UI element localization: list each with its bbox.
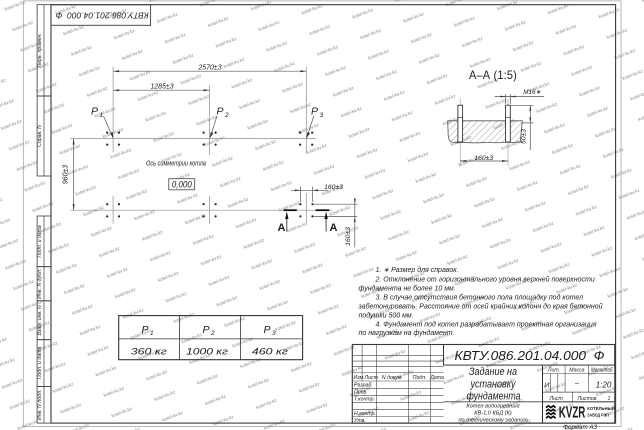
svg-text:N докум.: N докум. (382, 375, 403, 381)
svg-text:4. Фундамент под котел разраба: 4. Фундамент под котел разрабатывает про… (376, 320, 597, 328)
svg-text:А–А (1:5): А–А (1:5) (469, 68, 517, 82)
svg-text:ЗАВОД РЭП: ЗАВОД РЭП (587, 413, 609, 419)
svg-text:2: 2 (210, 330, 215, 337)
svg-text:Р: Р (217, 106, 224, 118)
svg-text:подушки 500 мм.: подушки 500 мм. (359, 311, 414, 319)
svg-text:КВТУ.086.201.04.000 Ф: КВТУ.086.201.04.000 Ф (56, 10, 149, 20)
svg-text:1285±3: 1285±3 (150, 83, 173, 90)
svg-text:Взам. инв. N: Взам. инв. N (37, 305, 43, 335)
svg-text:Р: Р (142, 324, 149, 336)
svg-text:Инв. N подл.: Инв. N подл. (37, 390, 43, 420)
svg-text:А: А (278, 222, 286, 234)
svg-text:КВ-1,0 КБД (К): КВ-1,0 КБД (К) (474, 410, 512, 416)
svg-text:3. В случае отсутствия бетонно: 3. В случае отсутствия бетонного пола пл… (376, 293, 584, 301)
svg-text:2: 2 (224, 112, 229, 119)
svg-text:Задание на: Задание на (469, 366, 517, 378)
svg-text:1. ∗ Размер для справок.: 1. ∗ Размер для справок. (376, 266, 459, 274)
svg-text:Утв.: Утв. (354, 418, 366, 424)
svg-text:360 кг: 360 кг (131, 347, 167, 358)
svg-text:2. Отклонение от горизонтально: 2. Отклонение от горизонтального уровня … (375, 275, 595, 283)
svg-text:50±3: 50±3 (521, 129, 528, 144)
svg-text:М16∗: М16∗ (523, 89, 541, 96)
svg-text:Изм.Лист: Изм.Лист (354, 375, 379, 381)
svg-text:Масса: Масса (569, 367, 584, 373)
svg-text:Инв. N дубл.: Инв. N дубл. (37, 269, 43, 299)
svg-text:1: 1 (608, 396, 611, 402)
svg-text:по нагрузкам на фундамент.: по нагрузкам на фундамент. (359, 329, 455, 337)
svg-text:Справ. N: Справ. N (37, 125, 43, 147)
svg-text:Лист: Лист (549, 396, 564, 402)
svg-text:160±3: 160±3 (345, 227, 352, 246)
svg-text:–: – (574, 379, 580, 388)
svg-text:KVZR: KVZR (559, 405, 586, 422)
svg-text:Т.контр.: Т.контр. (354, 397, 375, 403)
svg-text:1: 1 (150, 330, 154, 337)
svg-text:Котел водогрейный: Котел водогрейный (466, 403, 519, 410)
svg-text:960±3: 960±3 (63, 165, 70, 185)
svg-text:Р: Р (311, 106, 318, 118)
svg-text:Подп. и дата: Подп. и дата (37, 225, 43, 258)
svg-text:И: И (544, 381, 550, 390)
svg-text:Подп.: Подп. (413, 375, 427, 381)
svg-text:КВТУ.086.201.04.000 Ф: КВТУ.086.201.04.000 Ф (455, 348, 605, 363)
svg-text:Подп. и дата: Подп. и дата (37, 347, 43, 380)
svg-text:Разраб.: Разраб. (354, 383, 373, 389)
svg-text:Р: Р (91, 106, 98, 118)
svg-text:460 кг: 460 кг (252, 347, 288, 358)
svg-text:160±3: 160±3 (324, 184, 343, 191)
svg-text:1000 кг: 1000 кг (186, 347, 228, 358)
svg-text:Листов: Листов (577, 396, 597, 402)
svg-text:Р: Р (264, 324, 271, 336)
svg-text:1: 1 (100, 112, 104, 119)
svg-text:1:20: 1:20 (596, 381, 612, 390)
svg-text:2570±3: 2570±3 (197, 64, 221, 71)
svg-text:Формат А3: Формат А3 (563, 424, 597, 430)
svg-text:фундамента: фундамента (467, 391, 521, 403)
svg-text:Перв. примен.: Перв. примен. (37, 33, 43, 67)
svg-text:по техническому заданию: по техническому заданию (458, 417, 528, 423)
svg-text:забетонировать. Расстояние от: забетонировать. Расстояние от осей крайн… (358, 302, 603, 310)
svg-text:160±3: 160±3 (474, 155, 493, 162)
svg-text:Пров.: Пров. (354, 390, 368, 396)
svg-text:Ось симметрии котла: Ось симметрии котла (146, 159, 206, 168)
svg-text:Р: Р (203, 324, 210, 336)
svg-text:Н.контр.: Н.контр. (354, 411, 376, 417)
svg-text:Лит.: Лит. (547, 367, 560, 373)
svg-text:3: 3 (272, 330, 276, 337)
svg-text:А: А (330, 222, 338, 234)
svg-text:3: 3 (320, 112, 324, 119)
svg-text:Дата: Дата (429, 375, 444, 381)
svg-text:установку: установку (470, 379, 517, 391)
svg-text:фундамента не более 10 мм.: фундамента не более 10 мм. (359, 284, 456, 292)
svg-text:Масштаб: Масштаб (591, 367, 613, 373)
svg-text:0,000: 0,000 (172, 180, 192, 190)
